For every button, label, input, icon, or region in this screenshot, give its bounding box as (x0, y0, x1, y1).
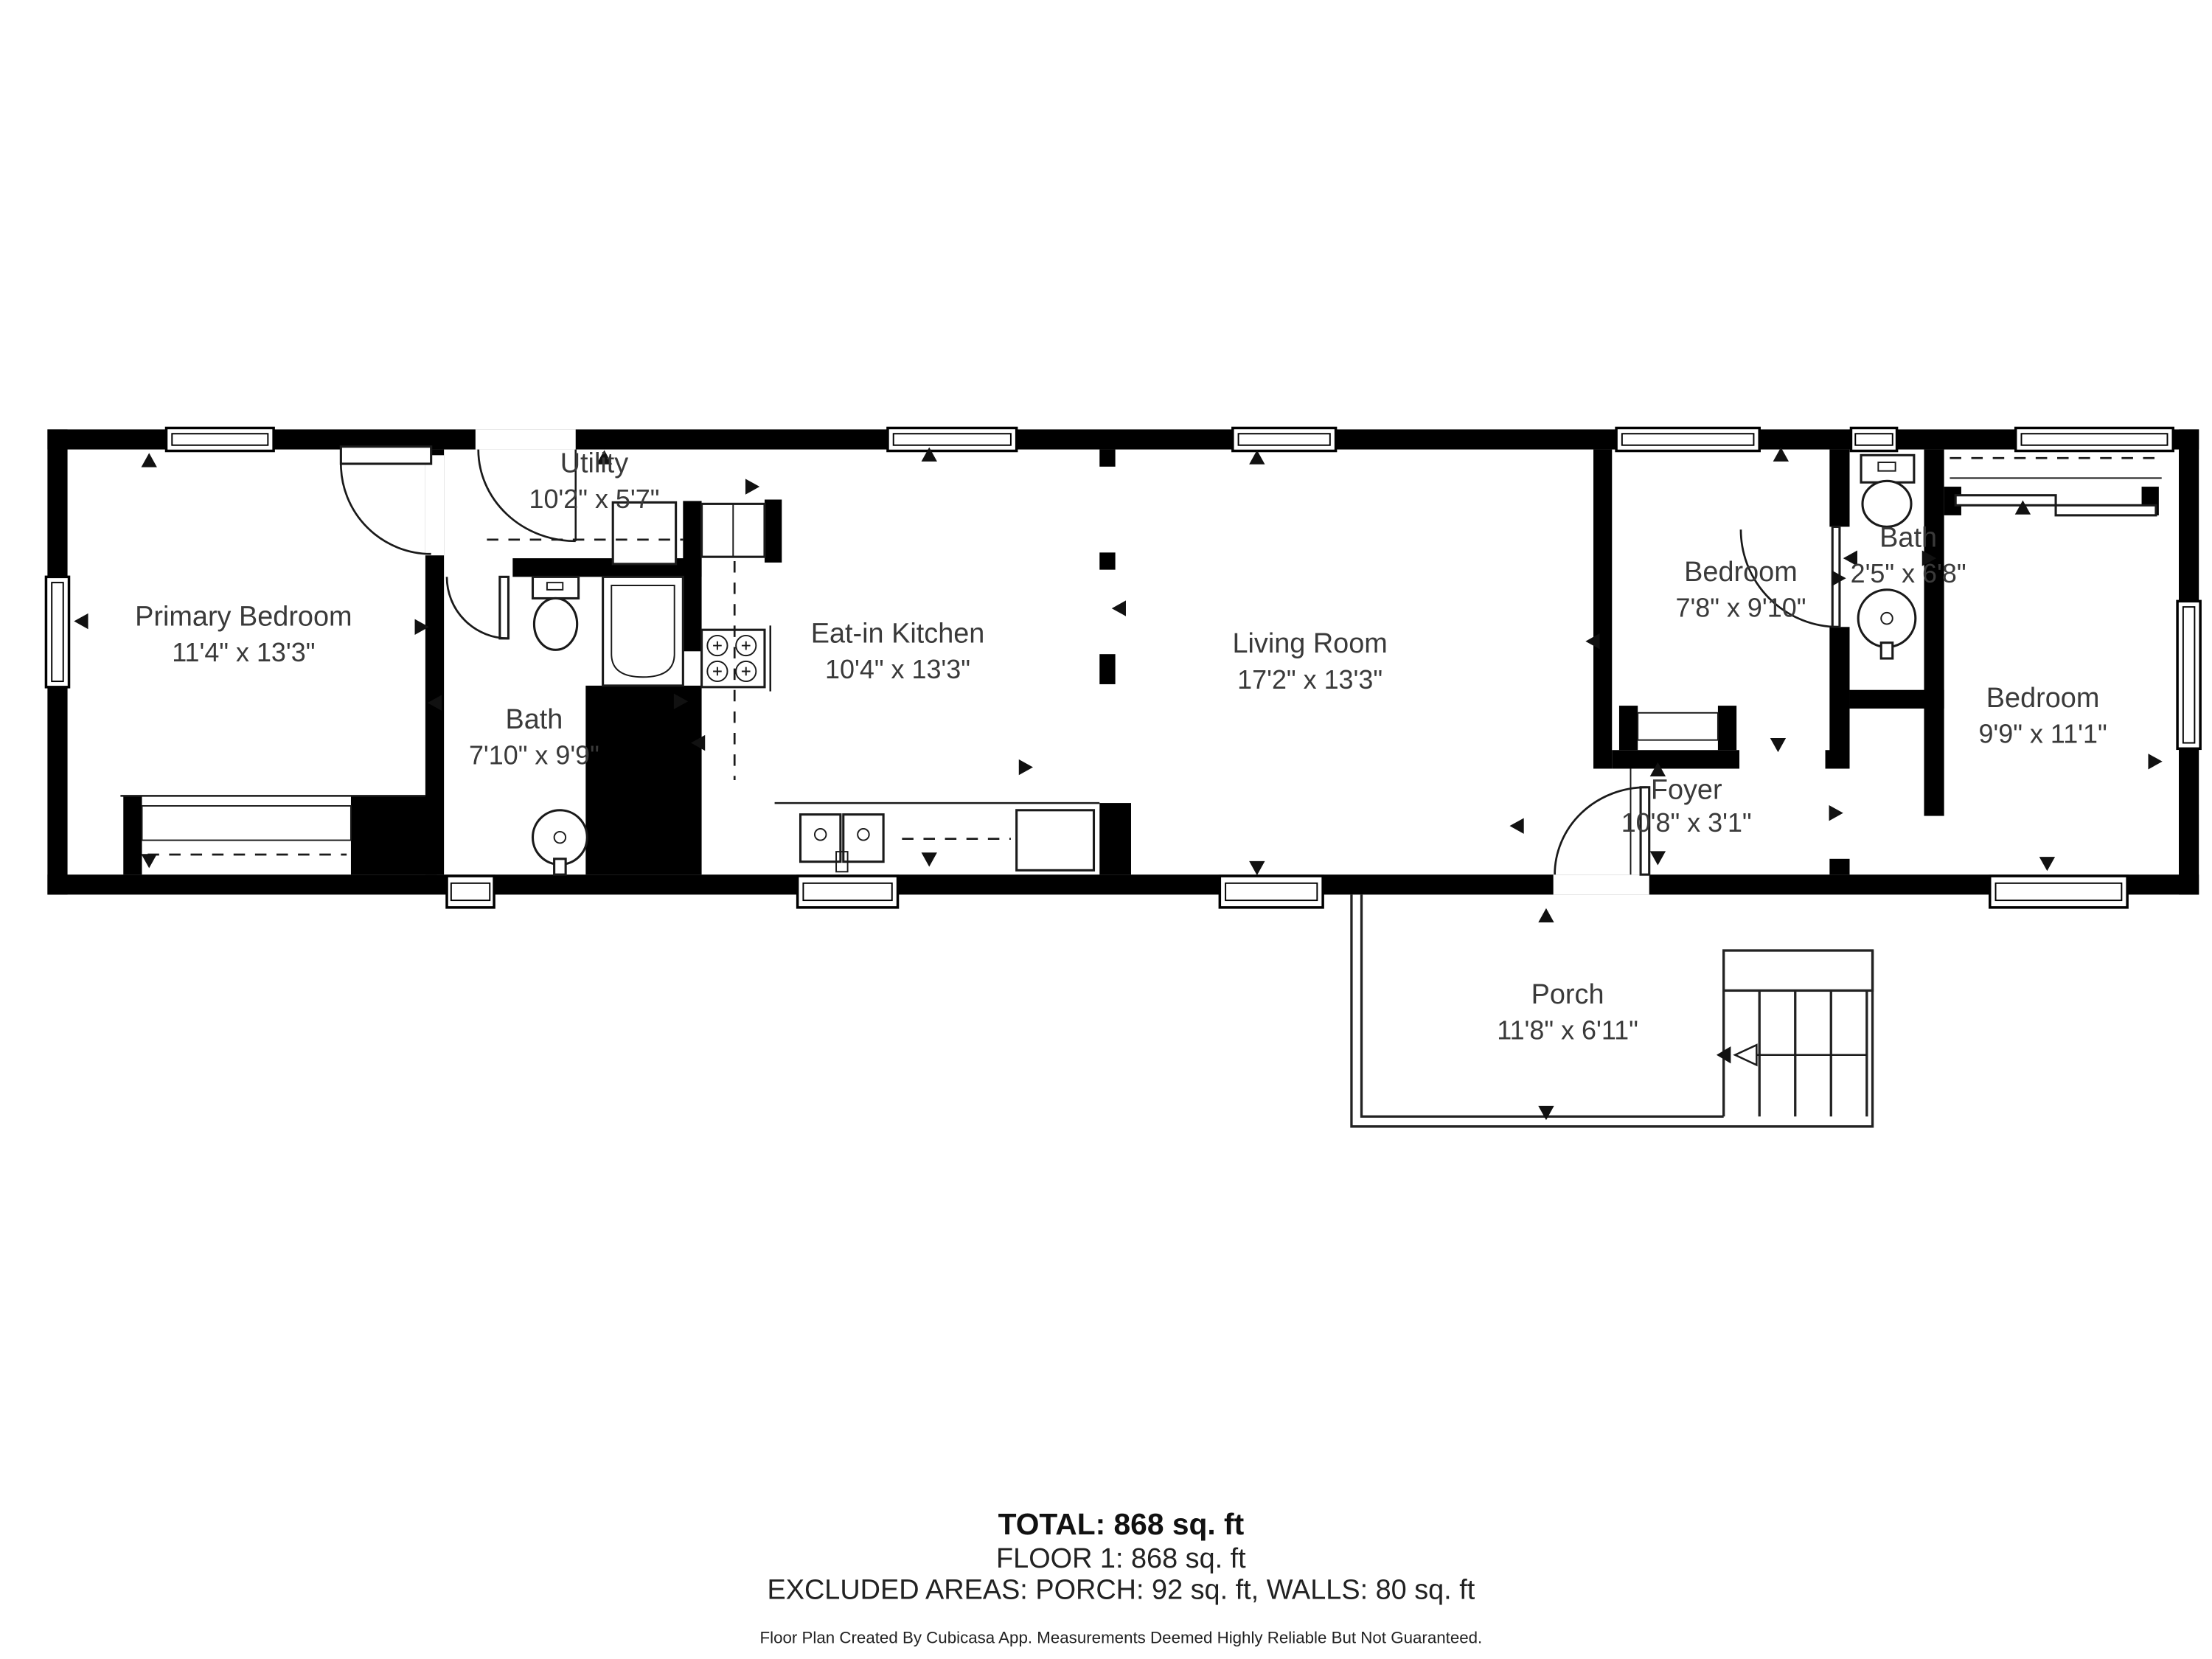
stairs-icon (1717, 950, 1873, 1116)
floor-area-text: FLOOR 1: 868 sq. ft (996, 1543, 1246, 1574)
door-direction-marker (1538, 908, 1554, 922)
svg-text:7'8" x 9'10": 7'8" x 9'10" (1675, 593, 1806, 623)
bath1-door-icon (447, 577, 508, 638)
sliding-door-panel (2056, 505, 2156, 515)
kitchen-upper-cabinet (702, 504, 765, 557)
window-bedroom3-bottom (1990, 876, 2127, 908)
window-bedroom2-top (1616, 428, 1759, 451)
bathtub-icon (603, 577, 684, 686)
svg-text:Bedroom: Bedroom (1986, 683, 2100, 714)
bedroom2-closet-shelf (1638, 713, 1718, 740)
window-living-top (1233, 428, 1336, 451)
porch-outline (1352, 894, 1873, 1126)
svg-text:Living Room: Living Room (1232, 628, 1387, 659)
utility-door-gap (476, 429, 576, 449)
entry-door-gap (1554, 874, 1649, 894)
disclaimer-text: Floor Plan Created By Cubicasa App. Meas… (759, 1629, 1482, 1647)
door-direction-marker (1585, 633, 1599, 649)
door-direction-marker (1249, 861, 1265, 875)
bedroom3-closet (1950, 458, 2161, 515)
footer: TOTAL: 868 sq. ft FLOOR 1: 868 sq. ft EX… (759, 1507, 1482, 1647)
room-label-bedroom-2: Bedroom 7'8" x 9'10" (1675, 557, 1806, 623)
door-direction-marker (1770, 738, 1786, 752)
room-label-bath-2: Bath 2'5" x 6'8" (1851, 523, 1966, 589)
svg-text:Primary Bedroom: Primary Bedroom (135, 601, 352, 632)
wall-mass-closet (351, 796, 437, 874)
svg-text:9'9" x 11'1": 9'9" x 11'1" (1978, 719, 2107, 749)
svg-text:10'2" x 5'7": 10'2" x 5'7" (529, 484, 659, 514)
svg-text:Bath: Bath (1879, 523, 1937, 554)
floor-plan-canvas: Primary Bedroom 11'4" x 13'3" Utility 10… (0, 0, 2212, 1659)
total-area-text: TOTAL: 868 sq. ft (998, 1507, 1245, 1541)
wall-mass-bath-kitchen (585, 686, 701, 874)
window-bath1-bottom (447, 876, 494, 908)
room-label-utility: Utility 10'2" x 5'7" (529, 448, 659, 515)
door-direction-marker (2039, 857, 2055, 871)
door-direction-marker (922, 852, 937, 866)
direction-markers (74, 448, 2162, 1120)
primary-bedroom-door-icon (341, 447, 431, 554)
window-living-bottom (1220, 876, 1323, 908)
sliding-door-panel (1955, 495, 2056, 506)
excluded-area-text: EXCLUDED AREAS: PORCH: 92 sq. ft, WALLS:… (768, 1574, 1475, 1605)
svg-text:Bedroom: Bedroom (1684, 557, 1798, 588)
svg-text:2'5" x 6'8": 2'5" x 6'8" (1851, 558, 1966, 588)
svg-text:10'8" x 3'1": 10'8" x 3'1" (1621, 807, 1752, 838)
door-direction-marker (1538, 1106, 1554, 1120)
door-direction-marker (1509, 818, 1523, 833)
room-label-primary-bedroom: Primary Bedroom 11'4" x 13'3" (135, 601, 352, 667)
svg-text:11'4" x 13'3": 11'4" x 13'3" (172, 637, 315, 667)
room-label-eat-in-kitchen: Eat-in Kitchen 10'4" x 13'3" (811, 619, 985, 685)
window-bath2-top (1851, 428, 1896, 451)
door-direction-marker (142, 854, 157, 868)
door-direction-marker (74, 613, 88, 629)
toilet-icon-bath2 (1861, 455, 1914, 526)
svg-text:7'10" x 9'9": 7'10" x 9'9" (469, 740, 599, 771)
dishwasher-icon (1017, 810, 1094, 871)
door-direction-marker (2148, 754, 2162, 769)
kitchen-counter (775, 803, 1100, 872)
primary-bedroom-door-gap (425, 455, 444, 555)
window-kitchen-bottom (798, 876, 898, 908)
svg-text:11'8" x 6'11": 11'8" x 6'11" (1497, 1015, 1638, 1045)
svg-text:Utility: Utility (560, 448, 629, 479)
window-bedroom3-top (2016, 428, 2174, 451)
svg-text:Eat-in Kitchen: Eat-in Kitchen (811, 619, 985, 650)
svg-text:17'2" x 13'3": 17'2" x 13'3" (1237, 664, 1382, 695)
window-primary-top (167, 428, 274, 451)
door-direction-marker (142, 453, 157, 467)
room-label-porch: Porch 11'8" x 6'11" (1497, 979, 1638, 1046)
room-label-living-room: Living Room 17'2" x 13'3" (1232, 628, 1387, 695)
door-direction-marker (1249, 451, 1265, 465)
door-direction-marker (1019, 759, 1033, 775)
svg-text:10'4" x 13'3": 10'4" x 13'3" (825, 654, 970, 684)
svg-text:Bath: Bath (506, 704, 563, 735)
room-label-bath-1: Bath 7'10" x 9'9" (469, 704, 599, 771)
door-direction-marker (1650, 851, 1666, 865)
door-direction-marker (1829, 805, 1843, 821)
window-kitchen-top (888, 428, 1017, 451)
room-label-bedroom-3: Bedroom 9'9" x 11'1" (1978, 683, 2107, 749)
window-primary-left (46, 577, 69, 686)
sink-icon-bath1 (532, 810, 587, 874)
window-bedroom3-right (2177, 601, 2200, 748)
stove-icon (702, 625, 771, 691)
door-direction-marker (1112, 600, 1126, 616)
door-direction-marker (745, 479, 759, 494)
svg-text:Porch: Porch (1531, 979, 1604, 1010)
svg-text:Foyer: Foyer (1651, 774, 1722, 805)
toilet-icon-bath1 (532, 577, 578, 650)
sink-icon-bath2 (1858, 590, 1916, 658)
